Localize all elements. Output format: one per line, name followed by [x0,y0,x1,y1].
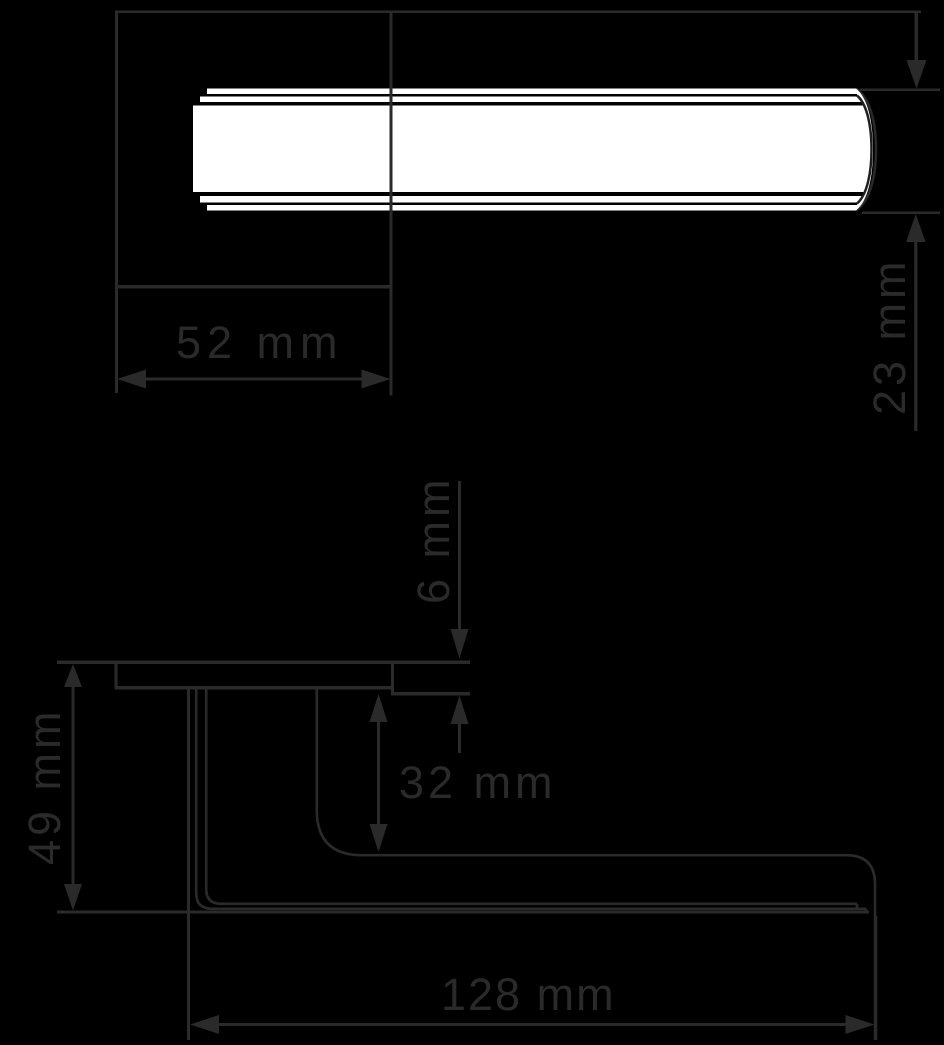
svg-text:128 mm: 128 mm [441,969,616,1020]
svg-text:23 mm: 23 mm [864,257,915,415]
svg-text:49 mm: 49 mm [19,707,70,865]
svg-text:6 mm: 6 mm [408,476,459,605]
svg-text:52 mm: 52 mm [176,317,344,368]
svg-text:32 mm: 32 mm [399,757,557,808]
